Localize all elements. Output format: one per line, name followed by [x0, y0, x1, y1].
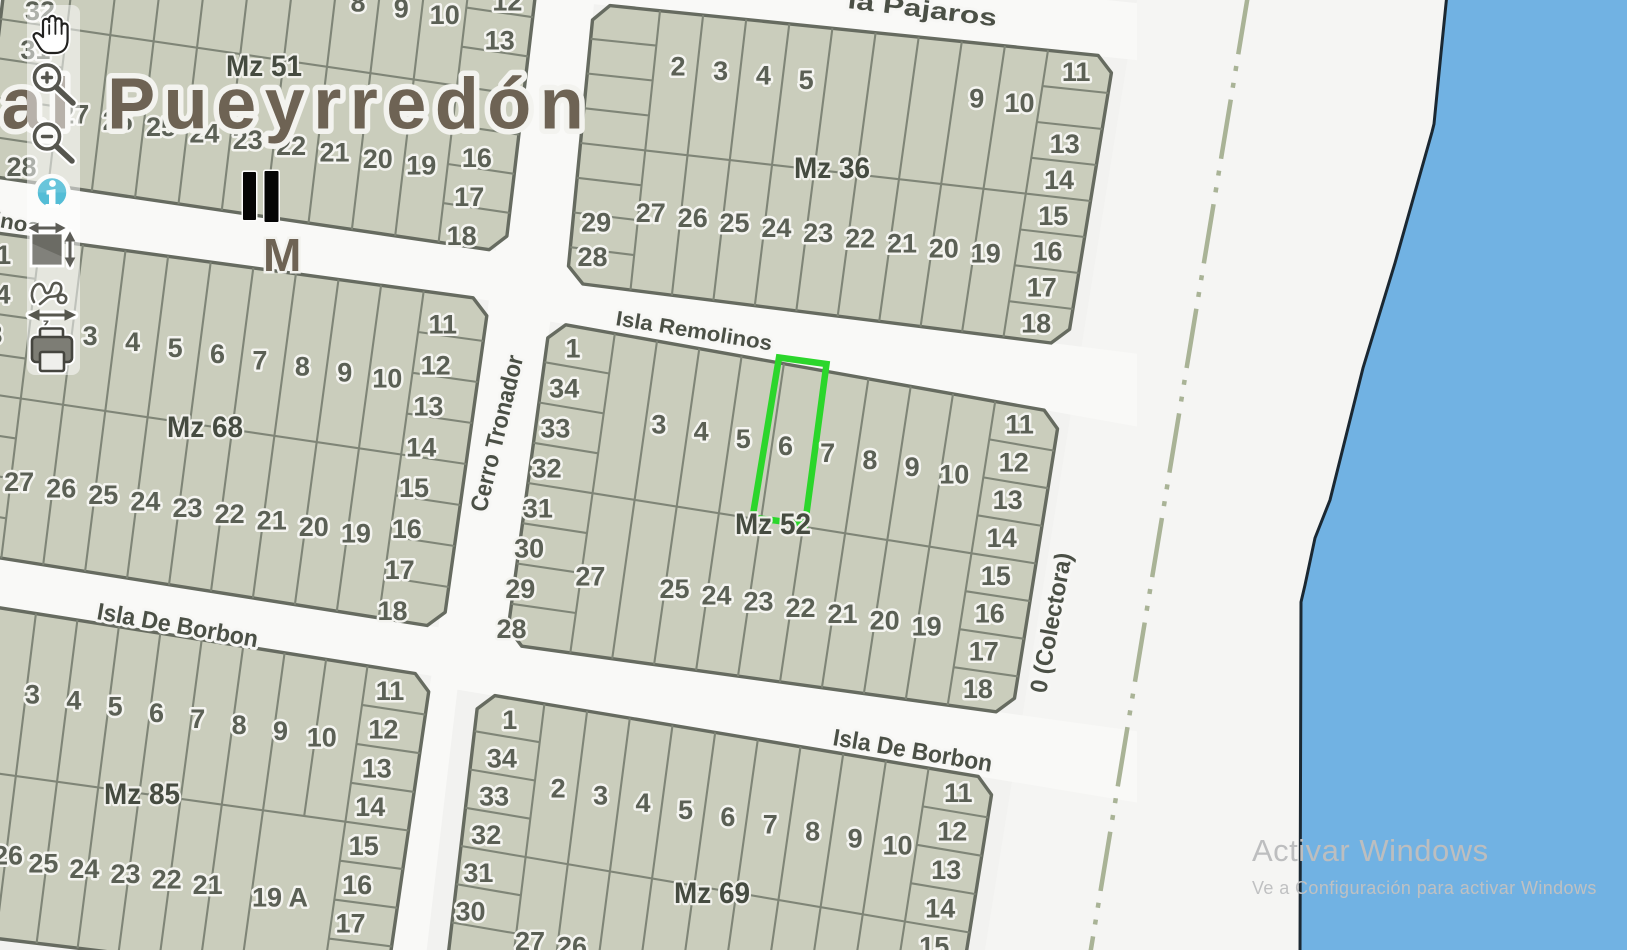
svg-text:4: 4: [756, 61, 771, 91]
svg-text:24: 24: [761, 213, 791, 243]
svg-text:5: 5: [799, 65, 814, 95]
svg-text:33: 33: [540, 414, 570, 444]
svg-text:General Pueyrredón: General Pueyrredón: [0, 65, 592, 145]
svg-text:27: 27: [575, 562, 605, 592]
svg-text:17: 17: [1027, 273, 1057, 303]
svg-text:13: 13: [1050, 129, 1080, 159]
svg-text:18: 18: [1021, 309, 1051, 339]
svg-text:24: 24: [701, 580, 731, 610]
svg-text:32: 32: [532, 454, 562, 484]
svg-text:34: 34: [0, 280, 11, 310]
svg-text:6: 6: [210, 339, 225, 369]
svg-text:1: 1: [0, 240, 11, 270]
svg-text:15: 15: [1038, 201, 1068, 231]
svg-text:Activar Windows: Activar Windows: [1252, 833, 1489, 868]
svg-text:13: 13: [485, 26, 515, 56]
svg-text:4: 4: [694, 417, 709, 447]
svg-text:10: 10: [939, 459, 969, 489]
svg-text:18: 18: [963, 674, 993, 704]
svg-text:30: 30: [514, 534, 544, 564]
svg-text:19 A: 19 A: [252, 883, 308, 913]
svg-text:19: 19: [971, 238, 1001, 268]
svg-text:9: 9: [905, 452, 920, 482]
svg-text:14: 14: [925, 893, 955, 923]
svg-text:Mz 36: Mz 36: [794, 152, 870, 185]
svg-text:13: 13: [993, 485, 1023, 515]
svg-text:30: 30: [455, 896, 485, 926]
svg-text:25: 25: [719, 208, 749, 238]
svg-text:21: 21: [257, 506, 287, 536]
svg-text:12: 12: [368, 715, 398, 745]
svg-text:19: 19: [406, 150, 436, 180]
svg-text:29: 29: [505, 574, 535, 604]
svg-text:7: 7: [190, 704, 205, 734]
svg-text:26: 26: [557, 932, 587, 950]
svg-text:1: 1: [502, 705, 517, 735]
svg-text:9: 9: [273, 716, 288, 746]
svg-text:14: 14: [406, 432, 436, 462]
svg-text:Ve a Configuración para activa: Ve a Configuración para activar Windows: [1252, 878, 1597, 898]
svg-text:14: 14: [987, 523, 1017, 553]
svg-text:15: 15: [399, 473, 429, 503]
svg-text:21: 21: [887, 228, 917, 258]
svg-text:11: 11: [1062, 57, 1091, 87]
svg-text:Mz 85: Mz 85: [104, 778, 180, 811]
svg-text:25: 25: [88, 480, 118, 510]
svg-text:5: 5: [736, 424, 751, 454]
svg-text:20: 20: [363, 144, 393, 174]
svg-text:8: 8: [295, 351, 310, 381]
svg-text:23: 23: [110, 859, 140, 889]
svg-text:7: 7: [252, 345, 267, 375]
svg-text:33: 33: [0, 320, 3, 350]
svg-text:5: 5: [678, 795, 693, 825]
svg-text:4: 4: [635, 788, 650, 818]
svg-text:6: 6: [720, 802, 735, 832]
svg-text:21: 21: [827, 599, 857, 629]
svg-text:12: 12: [421, 350, 451, 380]
svg-text:13: 13: [362, 753, 392, 783]
svg-text:23: 23: [743, 587, 773, 617]
svg-text:27: 27: [636, 198, 666, 228]
svg-text:Mz 69: Mz 69: [674, 877, 750, 910]
svg-text:20: 20: [870, 605, 900, 635]
svg-text:19: 19: [341, 518, 371, 548]
svg-text:34: 34: [487, 743, 517, 773]
svg-text:17: 17: [969, 636, 999, 666]
svg-text:8: 8: [862, 445, 877, 475]
svg-text:10: 10: [307, 722, 337, 752]
svg-text:16: 16: [342, 870, 372, 900]
svg-text:22: 22: [215, 499, 245, 529]
svg-text:10: 10: [1004, 88, 1034, 118]
svg-text:7: 7: [763, 809, 778, 839]
svg-text:20: 20: [929, 233, 959, 263]
svg-text:13: 13: [931, 855, 961, 885]
svg-text:6: 6: [149, 698, 164, 728]
svg-text:5: 5: [168, 333, 183, 363]
svg-text:16: 16: [1032, 237, 1062, 267]
svg-text:18: 18: [447, 221, 477, 251]
svg-text:1: 1: [565, 333, 580, 363]
svg-text:31: 31: [463, 858, 493, 888]
svg-text:21: 21: [193, 870, 223, 900]
svg-text:10: 10: [430, 0, 460, 30]
svg-text:11: 11: [429, 310, 458, 340]
svg-text:9: 9: [337, 357, 352, 387]
svg-text:15: 15: [349, 831, 379, 861]
svg-text:9: 9: [969, 84, 984, 114]
svg-text:23: 23: [172, 493, 202, 523]
svg-text:12: 12: [999, 447, 1029, 477]
svg-text:M: M: [263, 229, 301, 281]
svg-text:34: 34: [549, 373, 579, 403]
svg-text:10: 10: [882, 831, 912, 861]
svg-text:2: 2: [551, 774, 566, 804]
svg-text:3: 3: [593, 781, 608, 811]
svg-text:5: 5: [108, 692, 123, 722]
svg-text:16: 16: [392, 514, 422, 544]
svg-text:27: 27: [4, 467, 34, 497]
svg-text:Mz 52: Mz 52: [735, 508, 811, 541]
svg-text:16: 16: [462, 143, 492, 173]
svg-text:18: 18: [377, 596, 407, 626]
svg-text:31: 31: [523, 494, 553, 524]
svg-text:4: 4: [125, 327, 140, 357]
svg-text:7: 7: [820, 438, 835, 468]
svg-text:12: 12: [492, 0, 522, 16]
svg-text:27: 27: [515, 927, 545, 950]
svg-text:17: 17: [335, 909, 365, 939]
svg-text:22: 22: [845, 223, 875, 253]
svg-text:25: 25: [28, 849, 58, 879]
svg-text:28: 28: [577, 242, 607, 272]
svg-text:17: 17: [454, 182, 484, 212]
svg-text:26: 26: [678, 203, 708, 233]
svg-text:9: 9: [394, 0, 409, 24]
svg-text:8: 8: [350, 0, 365, 17]
svg-text:26: 26: [46, 474, 76, 504]
svg-text:11: 11: [1005, 410, 1034, 440]
svg-text:24: 24: [130, 486, 160, 516]
svg-text:32: 32: [471, 820, 501, 850]
svg-text:9: 9: [848, 824, 863, 854]
svg-text:8: 8: [805, 816, 820, 846]
svg-text:15: 15: [981, 561, 1011, 591]
svg-text:25: 25: [659, 574, 689, 604]
svg-text:3: 3: [651, 410, 666, 440]
svg-text:2: 2: [670, 51, 685, 81]
svg-text:15: 15: [919, 932, 949, 950]
svg-text:26: 26: [0, 841, 23, 871]
svg-text:33: 33: [479, 782, 509, 812]
svg-text:10: 10: [372, 363, 402, 393]
svg-text:14: 14: [355, 792, 385, 822]
svg-text:3: 3: [713, 56, 728, 86]
svg-text:22: 22: [785, 593, 815, 623]
svg-text:3: 3: [83, 321, 98, 351]
svg-text:19: 19: [912, 612, 942, 642]
svg-text:Mz 68: Mz 68: [167, 411, 243, 444]
svg-text:13: 13: [413, 391, 443, 421]
svg-text:16: 16: [975, 599, 1005, 629]
svg-text:8: 8: [232, 710, 247, 740]
svg-text:12: 12: [937, 817, 967, 847]
svg-text:6: 6: [778, 431, 793, 461]
svg-text:28: 28: [496, 614, 526, 644]
svg-text:11: 11: [944, 778, 973, 808]
svg-text:20: 20: [299, 512, 329, 542]
svg-text:29: 29: [581, 207, 611, 237]
svg-text:3: 3: [25, 679, 40, 709]
svg-text:22: 22: [152, 865, 182, 895]
svg-text:4: 4: [66, 686, 81, 716]
svg-text:14: 14: [1044, 165, 1074, 195]
svg-text:23: 23: [803, 218, 833, 248]
svg-text:24: 24: [69, 854, 99, 884]
svg-text:11: 11: [376, 676, 405, 706]
svg-text:17: 17: [385, 555, 415, 585]
